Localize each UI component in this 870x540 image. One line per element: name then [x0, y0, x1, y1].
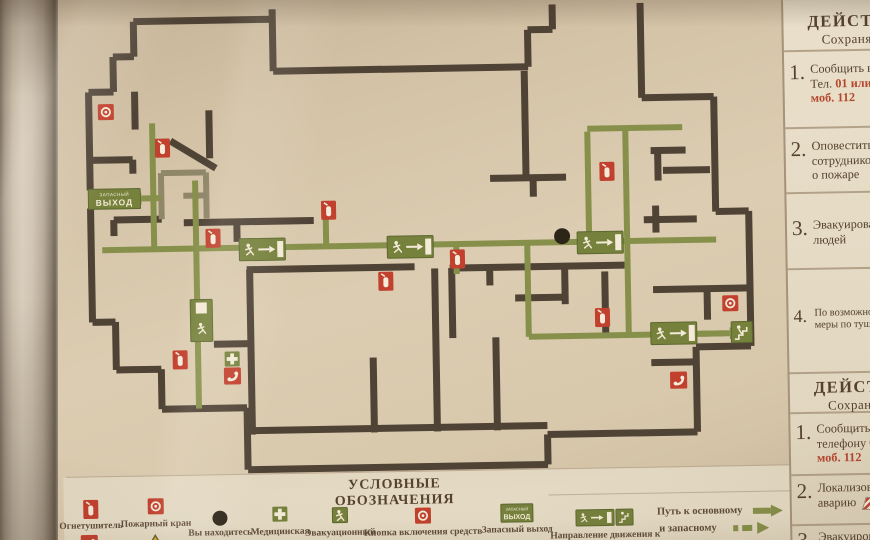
- wall: [161, 369, 162, 409]
- wall: [134, 92, 135, 130]
- wall: [452, 268, 453, 338]
- wall: [91, 208, 93, 322]
- phone-icon: [670, 372, 687, 389]
- hydrant-icon: [98, 104, 114, 120]
- exit-label-sign: ЗАПАСНЫЙВЫХОД: [88, 189, 140, 210]
- instruction-item: 3.Эвакуироватьлюдей: [787, 213, 870, 216]
- wall: [565, 266, 566, 304]
- wall: [651, 150, 686, 151]
- button-icon: [415, 508, 431, 524]
- wall: [209, 110, 210, 158]
- path-backup-dash: [733, 525, 738, 531]
- extinguisher-icon: [321, 201, 336, 220]
- extinguisher-icon: [205, 229, 220, 248]
- wall: [714, 97, 716, 212]
- wall: [90, 160, 133, 161]
- instruction-item: 3.Эвакуировать: [792, 525, 870, 528]
- instructions-panel: ДЕЙСТВИЯСохраняя1.Сообщить вТел. 01 илим…: [781, 0, 870, 540]
- wall: [653, 288, 750, 290]
- wall: [373, 358, 374, 433]
- wall: [524, 71, 526, 178]
- instruction-number: 3.: [797, 528, 813, 540]
- evac-h-sign: [651, 322, 697, 345]
- wall: [527, 30, 528, 67]
- wall: [116, 322, 117, 370]
- wall: [548, 432, 698, 435]
- panel-divider: [784, 49, 870, 52]
- escape-route: [587, 127, 682, 129]
- path-backup-label: и запасному: [659, 523, 717, 535]
- instruction-item: 4.По возможности принятьмеры по тушению …: [788, 303, 870, 306]
- instruction-number: 1.: [795, 420, 811, 445]
- phone-icon: [81, 535, 98, 540]
- medical-icon: [225, 351, 240, 366]
- panel-divider: [792, 522, 870, 525]
- wall: [250, 270, 253, 435]
- panel-section-title: ДЕЙСТВИЯСохраняя: [814, 376, 870, 414]
- tilted-plan-content: ЗАПАСНЫЙВЫХОДЗАПАСНЫЙВЫХОД УСЛОВНЫЕ ОБОЗ…: [0, 0, 870, 540]
- wall: [214, 344, 251, 345]
- wall: [89, 92, 91, 190]
- wall: [116, 369, 161, 370]
- wall: [642, 97, 714, 98]
- stairs-sign: [731, 321, 752, 342]
- wall: [696, 346, 751, 347]
- panel-divider: [788, 267, 870, 270]
- wall: [435, 268, 438, 431]
- wall: [548, 434, 549, 464]
- instruction-number: 4.: [793, 306, 807, 327]
- wall: [252, 425, 547, 430]
- wall: [247, 267, 415, 270]
- extinguisher-icon: [173, 350, 188, 369]
- wall: [707, 289, 708, 320]
- wall: [184, 221, 314, 223]
- extinguisher-icon: [450, 249, 465, 268]
- legend-title: УСЛОВНЫЕ ОБОЗНАЧЕНИЯ: [294, 475, 495, 510]
- escape-route: [587, 132, 589, 242]
- instruction-item: 1.Сообщить вТел. 01 илимоб. 112: [784, 57, 870, 60]
- wall: [490, 177, 566, 178]
- instruction-number: 2.: [790, 137, 806, 162]
- instruction-number: 2.: [796, 479, 812, 504]
- wall: [272, 9, 273, 71]
- path-main-label: Путь к основному: [657, 505, 743, 517]
- wall: [640, 3, 642, 98]
- wall: [658, 151, 659, 181]
- extinguisher-icon: [83, 500, 98, 519]
- evac-h-sign: [387, 235, 433, 258]
- path-backup-arrow-head: [757, 522, 769, 534]
- floor-plan-drawing: ЗАПАСНЫЙВЫХОДЗАПАСНЫЙВЫХОД: [0, 0, 870, 540]
- panel-divider: [789, 370, 870, 373]
- wall: [133, 19, 272, 21]
- instruction-number: 1.: [789, 60, 805, 85]
- panel-divider: [785, 126, 870, 129]
- evac-v-sign: [190, 299, 213, 341]
- wall: [162, 408, 247, 409]
- svg-text:ВЫХОД: ВЫХОД: [504, 514, 531, 521]
- wall: [496, 337, 498, 430]
- instruction-item: 1.Сообщить потелефону 01 имоб. 112: [790, 417, 870, 420]
- wall: [644, 219, 697, 220]
- exit-sign-line2: ВЫХОД: [96, 197, 134, 208]
- hydrant-icon: [722, 295, 738, 311]
- escape-route: [152, 123, 154, 249]
- panel-section-title: ДЕЙСТВИЯСохраняя: [807, 10, 870, 48]
- escape-route: [527, 243, 529, 337]
- wall: [651, 362, 696, 363]
- wall: [515, 297, 565, 298]
- path-backup-dash: [742, 525, 752, 531]
- faded-wall: [161, 172, 206, 173]
- instruction-item: 2.Оповеститьсотрудниково пожаре: [785, 134, 870, 137]
- route-arrow-shaft: [700, 333, 730, 334]
- escape-route: [625, 128, 629, 335]
- wall: [133, 22, 134, 57]
- path-main-arrow-head: [771, 504, 783, 516]
- wall: [663, 170, 710, 171]
- wall: [450, 265, 625, 268]
- wall: [248, 464, 548, 469]
- instruction-number: 3.: [792, 216, 808, 241]
- extinguisher-icon: [155, 139, 170, 158]
- wall: [273, 67, 528, 71]
- extinguisher-icon: [599, 162, 614, 181]
- evac-h-sign: [577, 231, 623, 254]
- frame-shadow: [0, 0, 58, 540]
- panel-divider: [791, 472, 870, 475]
- hydrant-icon: [148, 498, 164, 514]
- wall: [716, 211, 749, 212]
- medical-icon: [272, 507, 287, 522]
- extinguisher-icon: [378, 272, 393, 291]
- instruction-item: 2.Локализоватьаварию: [791, 476, 870, 479]
- escape-route: [195, 181, 199, 409]
- phone-icon: [224, 367, 241, 384]
- emergency-exit-sign-icon: ЗАПАСНЫЙВЫХОД: [501, 504, 533, 523]
- svg-text:ЗАПАСНЫЙ: ЗАПАСНЫЙ: [505, 506, 528, 511]
- evacuation-plan-photo: ЗАПАСНЫЙВЫХОДЗАПАСНЫЙВЫХОД УСЛОВНЫЕ ОБОЗ…: [0, 0, 870, 540]
- wall: [247, 408, 248, 470]
- wall: [113, 57, 114, 92]
- evac-h-sign: [239, 238, 285, 261]
- extinguisher-icon: [595, 308, 610, 327]
- panel-divider: [786, 191, 870, 194]
